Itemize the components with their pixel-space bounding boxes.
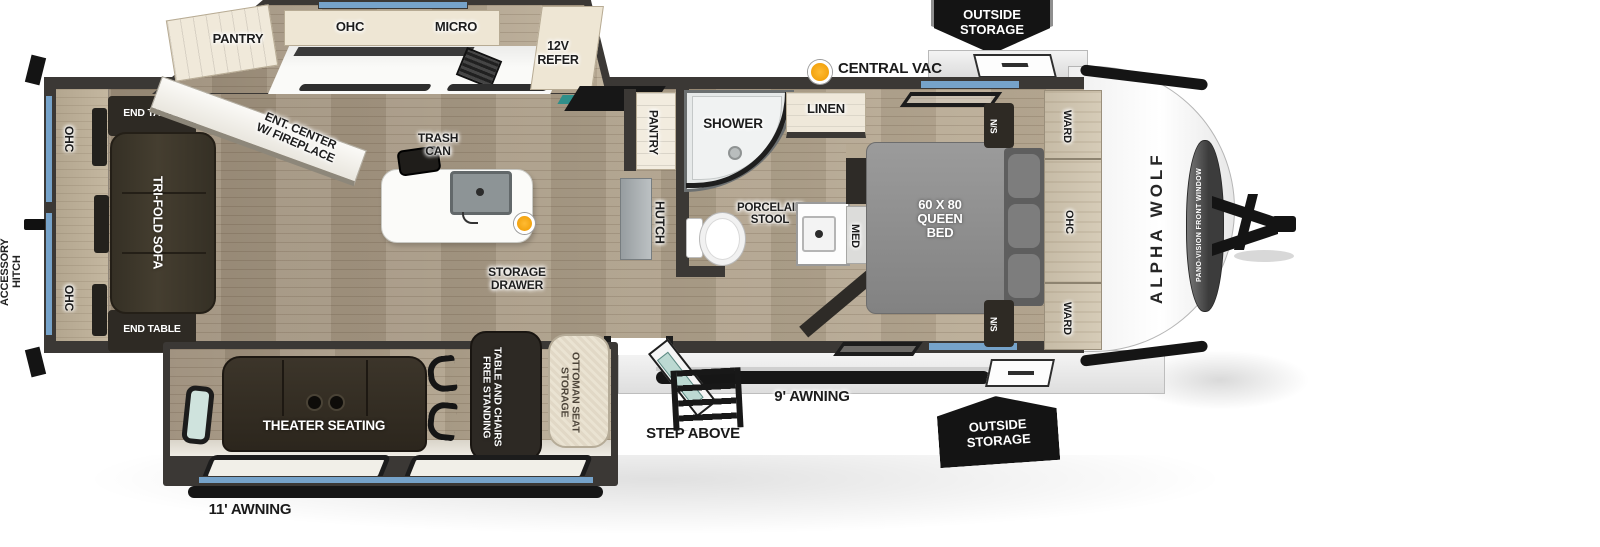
hitch-frame [1212, 192, 1307, 264]
rear-bumper-bottom [25, 347, 46, 378]
awning-rear-label: 11' AWNING [190, 502, 310, 518]
slide-bottom-window-strip [198, 476, 594, 484]
linen-label: LINEN [790, 102, 862, 116]
bed-pillow-3 [1008, 254, 1040, 298]
rear-cabinet-slot-2 [94, 195, 109, 253]
central-vac-label: CENTRAL VAC [838, 61, 948, 77]
storage-door-bottom-handle [1008, 371, 1034, 375]
sofa-label: TRI-FOLD SOFA [150, 152, 174, 294]
rear-cabinet-slot-1 [92, 108, 107, 166]
theater-seating-label: THEATER SEATING [240, 419, 408, 434]
wardrobe-seam-1 [1045, 158, 1101, 160]
bed-pillow-2 [1008, 204, 1040, 248]
accessory-hitch-label: ACCESSORY HITCH [0, 212, 36, 332]
roof-vent-bottom [833, 342, 923, 356]
rear-cabinet-slot-3 [92, 284, 107, 336]
outside-storage-top-label: OUTSIDE STORAGE [960, 8, 1024, 37]
nightstand-top-label: N/S [988, 108, 1010, 144]
kitchen-slide-window [318, 1, 468, 9]
free-standing-table-label: FREE STANDING TABLE AND CHAIRS [480, 340, 532, 454]
bed-label: 60 X 80 QUEEN BED [898, 198, 982, 240]
outside-storage-badge-bottom: OUTSIDE STORAGE [936, 392, 1060, 468]
bath-wall-stub [683, 266, 725, 277]
ohc-rear-top-label: OHC [62, 103, 84, 175]
theater-seat-seam-right [366, 360, 368, 416]
outside-storage-bottom-label: OUTSIDE STORAGE [965, 417, 1031, 450]
bedroom-window-top [920, 80, 1020, 89]
brand-label: ALPHA WOLF [1148, 130, 1178, 325]
island-vac-port [514, 213, 535, 234]
ohc-rear-bottom-label: OHC [62, 262, 84, 334]
end-table-bottom-label: END TABLE [110, 324, 194, 335]
counter-drawer-left [298, 84, 432, 91]
wardrobe-seam-2 [1045, 282, 1101, 284]
ward-bottom-label: WARD [1060, 292, 1084, 344]
floorplan: OUTSIDE STORAGE 9' AWNING OUTSIDE STORAG… [0, 0, 1600, 547]
rear-window-top [45, 95, 53, 203]
rear-window-bottom [45, 212, 53, 336]
step-above-label: STEP ABOVE [632, 426, 754, 442]
bed-pillow-1 [1008, 154, 1040, 198]
storage-ottoman-label: STORAGE OTTOMAN SEAT [558, 344, 602, 440]
entry-steps [670, 367, 743, 431]
pantry2-label: PANTRY [646, 98, 668, 166]
island-sink-drain [476, 188, 484, 196]
storage-drawer-label: STORAGE DRAWER [472, 266, 562, 292]
theater-cupholder-2 [328, 394, 345, 411]
rear-bumper-top [25, 55, 46, 86]
hutch [620, 178, 652, 260]
refer-label: 12V REFER [520, 40, 596, 67]
awning-rear-bar [188, 486, 603, 498]
theater-cupholder-1 [306, 394, 323, 411]
outside-storage-badge-top-inner: OUTSIDE STORAGE [934, 0, 1050, 54]
micro-label: MICRO [418, 20, 494, 34]
shower-label: SHOWER [690, 117, 776, 132]
pantry-label: PANTRY [188, 32, 288, 46]
ward-top-label: WARD [1060, 100, 1084, 152]
theater-seat-seam-left [282, 360, 284, 416]
awning-front-label: 9' AWNING [752, 389, 872, 405]
pano-vision-label: PANO-VISION FRONT WINDOW [1196, 146, 1212, 304]
pantry2-wall-left [624, 89, 636, 171]
hutch-label: HUTCH [652, 186, 676, 258]
trash-can-label: TRASH CAN [398, 132, 478, 158]
range-hood [293, 47, 474, 56]
kitchen-ohc-label: OHC [318, 20, 382, 34]
nightstand-bottom-label: N/S [988, 306, 1010, 342]
central-vac-port [808, 60, 832, 84]
theater-seating [222, 356, 427, 452]
vanity-drain [815, 230, 823, 238]
storage-door-top-handle [1002, 63, 1029, 67]
bedroom-ohc-label: OHC [1062, 196, 1086, 248]
